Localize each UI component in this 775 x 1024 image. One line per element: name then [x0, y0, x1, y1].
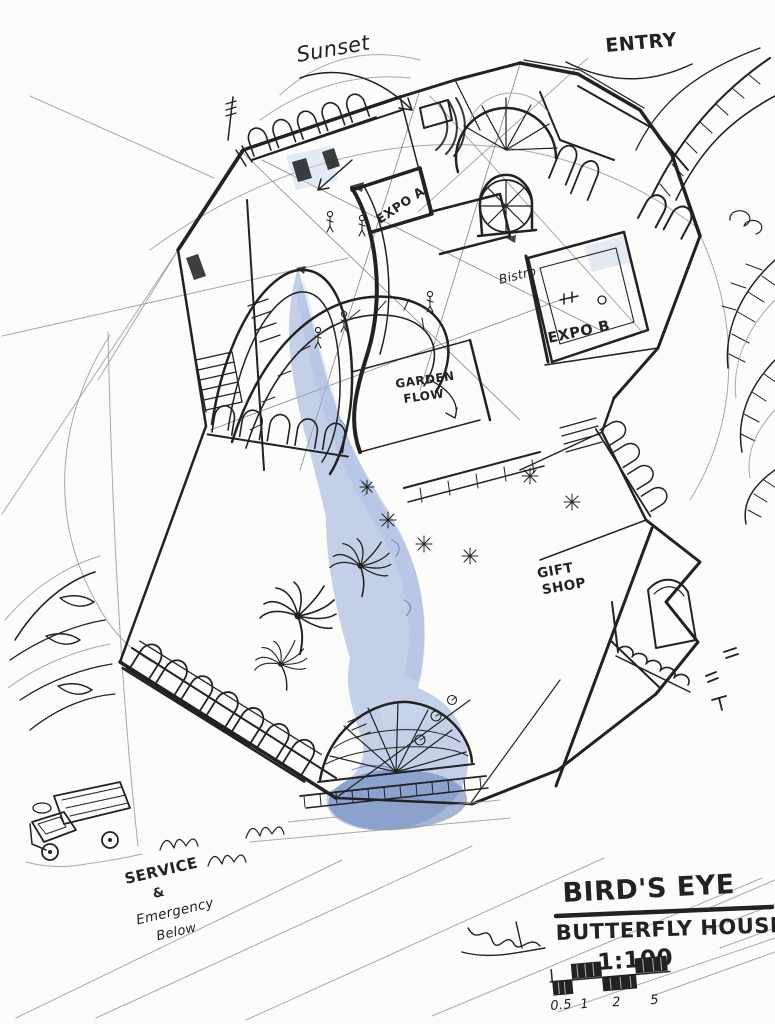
- sketch-page: Sunset ENTRY EXPO A Bistro EXPO B GARDEN…: [0, 0, 775, 1024]
- label-garden-flow: GARDEN FLOW: [394, 369, 457, 407]
- bridge-posts: [420, 460, 534, 502]
- sketch-scribble: [436, 98, 465, 156]
- foliage-right: [722, 260, 775, 524]
- antenna-mast: [226, 97, 236, 140]
- right-arcade: [596, 415, 673, 516]
- label-sunset: Sunset: [295, 30, 372, 67]
- scale-tick: 5: [650, 993, 660, 1009]
- svg-text:GARDEN: GARDEN: [394, 369, 455, 391]
- view-title: BIRD'S EYE: [562, 869, 736, 909]
- label-expo-a: EXPO A: [373, 183, 427, 226]
- foliage-left: [5, 556, 115, 730]
- label-service: SERVICE & Emergency Below: [123, 852, 221, 948]
- scale-tick: 0.5: [550, 997, 573, 1014]
- bridge-walkway: [404, 452, 544, 502]
- signature: [462, 922, 545, 955]
- mullion: [247, 200, 264, 470]
- svg-text:&: &: [151, 885, 166, 902]
- title-block: BIRD'S EYE BUTTERFLY HOUSE 1:100 0.5 1 2…: [462, 869, 775, 1017]
- gift-pavilion: [612, 580, 738, 710]
- sunset-arrow: [300, 73, 412, 110]
- scale-tick: 2: [612, 995, 622, 1011]
- scale-tick: 1: [580, 997, 590, 1013]
- label-entry: ENTRY: [605, 29, 678, 57]
- butterfly-house-sketch: Sunset ENTRY EXPO A Bistro EXPO B GARDEN…: [0, 0, 775, 1024]
- frond-leaflets: [660, 74, 760, 196]
- furniture-mark: [560, 292, 578, 304]
- svg-text:FLOW: FLOW: [403, 386, 445, 406]
- truck-tank: [33, 803, 51, 813]
- palm-tree: [260, 582, 336, 654]
- person-figure: [359, 215, 365, 236]
- person-figure: [327, 211, 333, 232]
- scalloped-balustrade: [616, 646, 690, 692]
- label-gift-shop: GIFT SHOP: [536, 558, 587, 599]
- ditto-marks: [706, 648, 738, 710]
- svg-text:SERVICE: SERVICE: [123, 854, 200, 888]
- label-expo-b: EXPO B: [547, 318, 612, 347]
- service-truck: [26, 782, 142, 867]
- stairs-right: [560, 418, 602, 452]
- circulation-spine: [352, 188, 377, 452]
- spiral-ramp: [232, 168, 516, 452]
- roof-arcade-upper-left: [242, 90, 376, 160]
- svg-text:Emergency: Emergency: [135, 895, 216, 929]
